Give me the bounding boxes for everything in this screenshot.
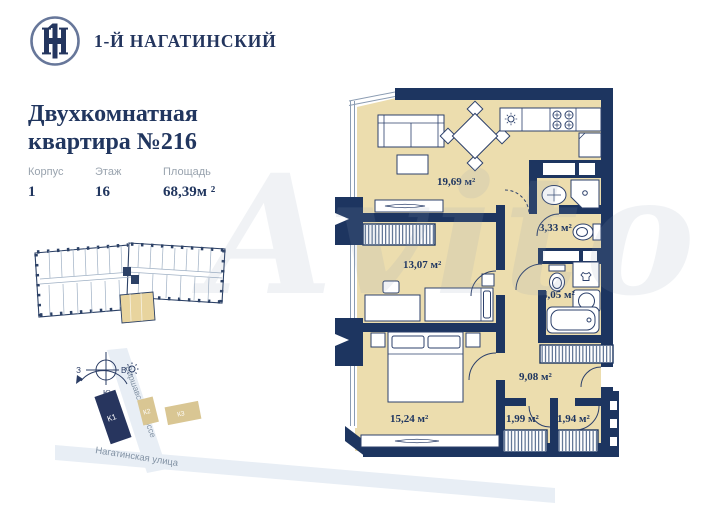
meta-label: Корпус [28, 166, 95, 178]
meta-label: Этаж [95, 166, 163, 178]
meta-value: 1 [28, 184, 95, 201]
window-sill-master [361, 435, 499, 447]
building-k3: К3 [165, 401, 202, 425]
meta-ploshchad: Площадь 68,39м ² [163, 166, 215, 201]
toilet-hall [573, 224, 601, 240]
room-label-master: 15,24 м² [390, 413, 429, 425]
room-label-hallway: 3,33 м² [539, 222, 572, 234]
single-bed [425, 288, 493, 321]
room-label-corridor: 9,08 м² [519, 371, 552, 383]
meta-korpus: Корпус 1 [28, 166, 95, 201]
meta-etazh: Этаж 16 [95, 166, 163, 201]
nightstand-right [466, 333, 480, 347]
brand-monogram-icon [28, 14, 82, 68]
page-title: Двухкомнатная квартира №216 [28, 100, 198, 157]
coffee-table [397, 155, 428, 174]
nightstand-left [371, 333, 385, 347]
room-label-bedroom: 13,07 м² [403, 259, 442, 271]
washing-machine [573, 262, 599, 287]
apartment-plan-page: 1-Й НАГАТИНСКИЙ Двухкомнатная квартира №… [0, 0, 720, 508]
room-label-wardrobe-right: 1,94 м² [557, 413, 590, 425]
room-label-wardrobe-left: 1,99 м² [506, 413, 539, 425]
washbasin-guest [542, 186, 566, 205]
floor-overview-plan [27, 237, 237, 333]
tv-console-living [375, 200, 443, 212]
double-bed [388, 332, 463, 402]
desk-chair [383, 281, 399, 293]
sofa [378, 115, 444, 147]
title-line-2: квартира №216 [28, 128, 198, 156]
room-label-bathroom: 4,05 м² [542, 289, 575, 301]
highlighted-apartment [120, 292, 155, 323]
nightstand-small [482, 274, 494, 286]
compass-east: В [121, 366, 126, 375]
meta-label: Площадь [163, 166, 215, 178]
toilet-bathroom [549, 265, 565, 291]
meta-value: 16 [95, 184, 163, 201]
compass-west: З [76, 366, 81, 375]
room-label-living: 19,69 м² [437, 176, 476, 188]
brand-logo: 1-Й НАГАТИНСКИЙ [28, 14, 277, 68]
kitchen-counter [500, 108, 601, 131]
apartment-floor-plan: 19,69 м² 3,33 м² 13,07 м² 4,05 м² 9,08 м… [333, 85, 639, 465]
desk [365, 295, 420, 321]
brand-name: 1-Й НАГАТИНСКИЙ [94, 31, 277, 52]
fridge [579, 133, 601, 157]
title-line-1: Двухкомнатная [28, 100, 198, 128]
meta-value: 68,39м ² [163, 184, 215, 201]
bathtub [547, 307, 599, 333]
apartment-meta: Корпус 1 Этаж 16 Площадь 68,39м ² [28, 166, 215, 201]
